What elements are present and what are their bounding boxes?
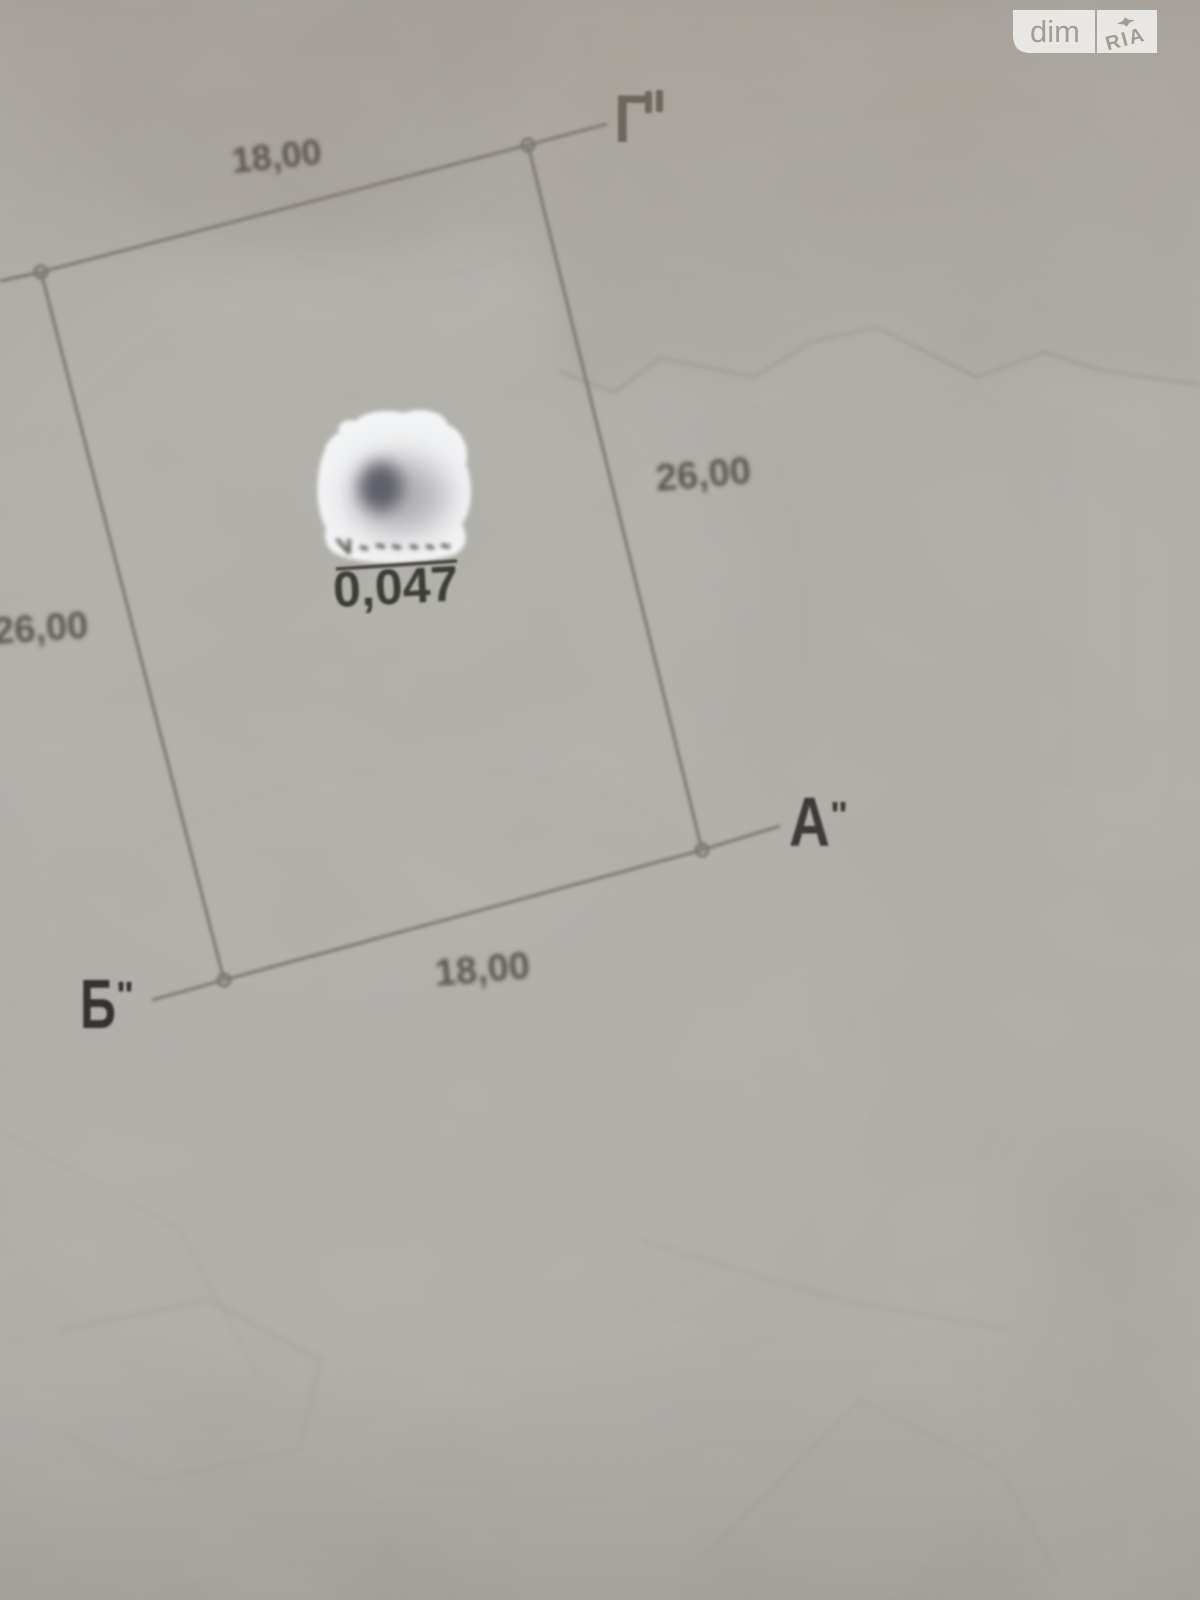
svg-text:26,00: 26,00 (654, 450, 752, 500)
svg-text:А: А (789, 783, 830, 861)
svg-text:Б: Б (80, 965, 116, 1043)
svg-text:dim: dim (1030, 14, 1080, 49)
svg-text:": " (116, 975, 134, 1017)
svg-text:": " (830, 795, 848, 837)
svg-text:18,00: 18,00 (433, 945, 531, 995)
svg-text:0,047: 0,047 (332, 556, 460, 618)
svg-text:Г: Г (614, 81, 648, 157)
svg-text:26,00: 26,00 (0, 604, 89, 653)
